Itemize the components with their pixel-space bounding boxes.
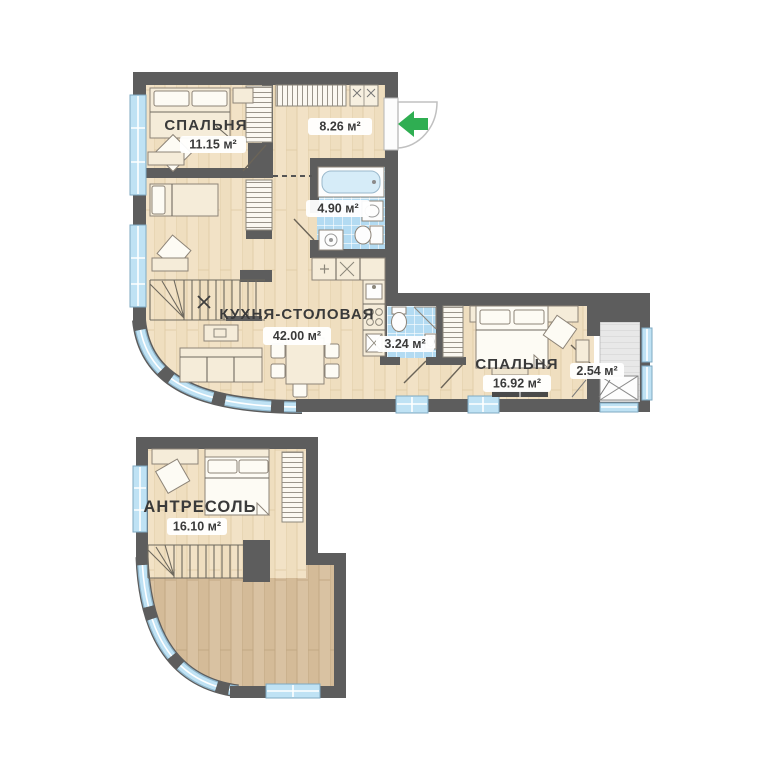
area-bedroom1: 11.15 м² xyxy=(189,138,236,152)
kitchen-sink-icon xyxy=(366,284,382,299)
wardrobe-room2-icon xyxy=(246,180,272,230)
nightstand-icon xyxy=(576,340,589,362)
window-bottom-1 xyxy=(396,396,428,413)
washing-machine-icon xyxy=(319,230,343,250)
headboard-shelf-icon xyxy=(205,449,269,457)
floor-plan-page: СПАЛЬНЯ 11.15 м² 8.26 м² 4.90 м² КУХНЯ-С… xyxy=(0,0,768,768)
room-label-mezzanine: АНТРЕСОЛЬ xyxy=(143,498,256,516)
area-bedroom2: 16.92 м² xyxy=(493,377,541,391)
area-bathroom-main: 4.90 м² xyxy=(317,202,358,216)
tv-stand-icon xyxy=(204,325,238,341)
entrance-opening xyxy=(384,98,398,150)
floor-plan-canvas: СПАЛЬНЯ 11.15 м² 8.26 м² 4.90 м² КУХНЯ-С… xyxy=(0,0,768,768)
bathtub-icon xyxy=(318,167,384,197)
area-bathroom-small: 3.24 м² xyxy=(384,337,425,351)
nightstand-icon xyxy=(233,88,253,103)
shoe-cabinet-icon xyxy=(350,85,378,106)
bench-icon xyxy=(148,152,184,165)
wardrobe-mezzanine-icon xyxy=(282,452,303,522)
entrance-door xyxy=(384,98,437,150)
window-lower-bottom xyxy=(266,684,320,698)
area-balcony: 2.54 м² xyxy=(576,364,617,378)
area-kitchen: 42.00 м² xyxy=(273,329,321,343)
room-label-bedroom2: СПАЛЬНЯ xyxy=(475,356,558,373)
toilet-icon xyxy=(392,307,407,332)
window-left-1 xyxy=(130,95,146,195)
upper-floor-plan: СПАЛЬНЯ 11.15 м² 8.26 м² 4.90 м² КУХНЯ-С… xyxy=(130,72,652,413)
window-left-2 xyxy=(130,225,146,307)
wardrobe-bedroom2-icon xyxy=(443,306,463,357)
wardrobe-hallway-icon xyxy=(276,85,346,106)
sofa-icon xyxy=(180,348,262,382)
open-area-floor xyxy=(146,563,340,692)
room-label-kitchen: КУХНЯ-СТОЛОВАЯ xyxy=(219,306,374,323)
toilet-icon xyxy=(355,226,383,244)
lower-floor-plan: АНТРЕСОЛЬ 16.10 м² xyxy=(133,437,346,698)
area-hallway: 8.26 м² xyxy=(319,120,360,134)
desk-icon xyxy=(152,258,188,271)
room-label-bedroom1: СПАЛЬНЯ xyxy=(164,117,247,134)
window-bottom-2 xyxy=(468,396,499,413)
area-mezzanine: 16.10 м² xyxy=(173,520,221,534)
